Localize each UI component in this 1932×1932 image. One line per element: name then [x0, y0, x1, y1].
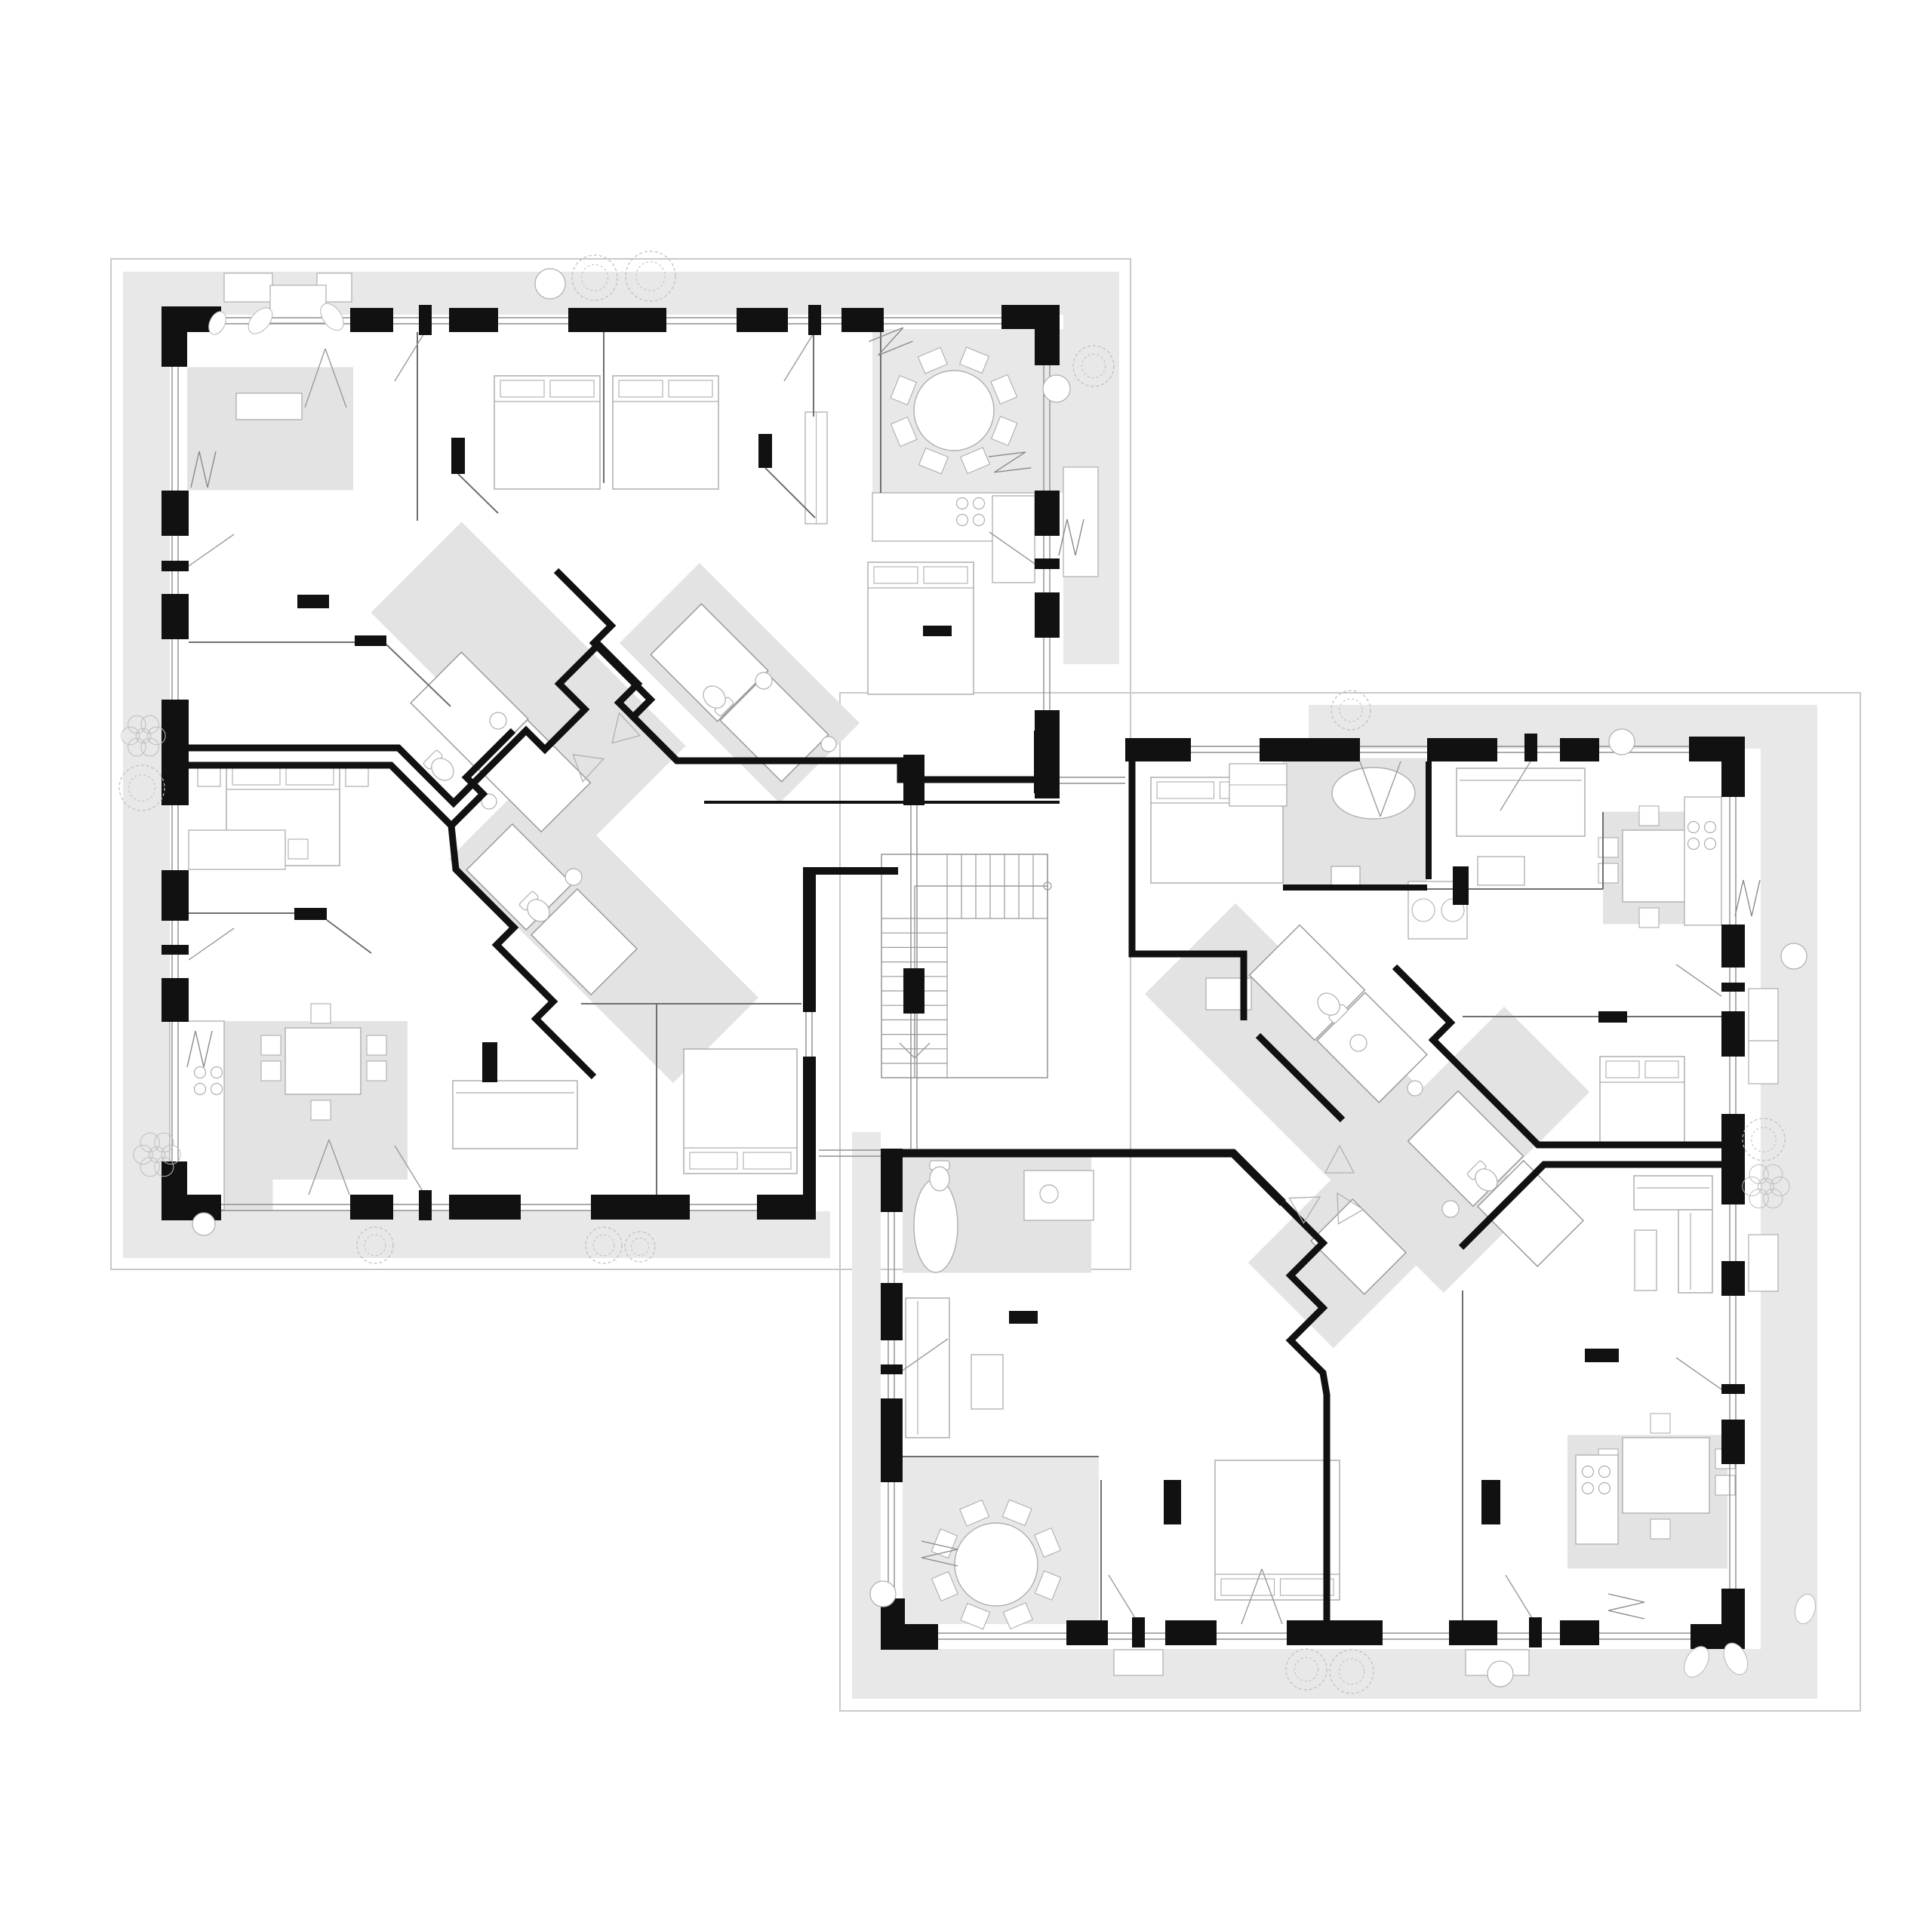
wall-pier [449, 308, 498, 332]
wall-pier [881, 1283, 903, 1340]
chair [1639, 806, 1659, 826]
table [1478, 857, 1524, 885]
wall-pier [1721, 1114, 1745, 1204]
table [236, 393, 302, 420]
bed [613, 376, 718, 489]
planter [1043, 375, 1070, 402]
desk [189, 830, 285, 869]
wall-pier [881, 1398, 903, 1482]
sink [1040, 1185, 1058, 1203]
wall-pier [808, 305, 821, 335]
planter [535, 269, 565, 299]
wall-pier [162, 700, 189, 805]
sofa [1634, 1176, 1712, 1210]
wall-jamb [294, 908, 327, 920]
wall-jamb [355, 635, 386, 646]
wall-jamb [1598, 1011, 1627, 1023]
wall-jamb [1585, 1349, 1619, 1362]
bed [494, 376, 600, 489]
sink [1442, 1201, 1459, 1217]
sink [1350, 1035, 1367, 1051]
wall-jamb [297, 595, 329, 608]
wardrobe [1229, 764, 1287, 806]
bed-pillow [1606, 1061, 1639, 1078]
sofa-body [1634, 1176, 1712, 1210]
chair [1715, 1475, 1735, 1495]
wall-pier [419, 305, 432, 335]
wall-pier [841, 308, 884, 332]
kitchen-counter [1024, 1171, 1094, 1220]
sink [821, 737, 836, 752]
terrace-band [1761, 705, 1817, 1699]
terrace-furniture [224, 273, 272, 302]
chair [1651, 1519, 1670, 1539]
bed-pillow [500, 380, 544, 397]
bed [684, 1049, 797, 1174]
partition-wall [458, 474, 498, 513]
chair [261, 1061, 281, 1081]
chair [311, 1100, 331, 1120]
wall-pier [1721, 1261, 1745, 1296]
round-table [914, 371, 994, 451]
wall-pier [1427, 738, 1497, 761]
wall-pier [1035, 491, 1060, 536]
planter [1609, 729, 1635, 755]
wall-pier [903, 968, 924, 1014]
wall-pier [162, 978, 189, 1022]
wall-pier [881, 1364, 903, 1374]
sofa [1678, 1210, 1712, 1293]
bed-pillow [550, 380, 594, 397]
bed-pillow [1645, 1061, 1678, 1078]
wall-pier [1524, 734, 1537, 761]
planter [870, 1581, 896, 1607]
chair [311, 1004, 331, 1023]
sofa-body [453, 1081, 577, 1149]
wall-jamb [758, 434, 772, 468]
wall-pier [162, 870, 189, 921]
kitchen-counter [1684, 797, 1721, 925]
sofa [453, 1081, 577, 1149]
chair [288, 839, 308, 859]
planter [192, 1213, 215, 1235]
wall-jamb [1481, 1480, 1500, 1524]
door-leaf [1109, 1575, 1139, 1624]
terrace-furniture [1749, 1235, 1778, 1291]
sink [490, 712, 506, 729]
door-leaf [1676, 1358, 1721, 1389]
wall-jamb [482, 1042, 497, 1082]
partition-wall [327, 920, 371, 953]
toilet-bowl [930, 1167, 949, 1191]
wall-pier [1260, 738, 1360, 761]
wall-pier [1721, 1011, 1745, 1057]
wall-pier [803, 1057, 816, 1220]
wall-pier [1035, 592, 1060, 638]
wall-pier [1035, 558, 1060, 569]
wall-jamb [1453, 866, 1469, 905]
wall-pier [1560, 738, 1599, 761]
wall-pier [1066, 1620, 1108, 1645]
wall-pier [1125, 738, 1191, 761]
floor-plan-page [0, 0, 1932, 1932]
bed-pillow [286, 768, 334, 785]
wall-pier [1132, 1617, 1145, 1647]
sink [755, 672, 772, 689]
planter [1487, 1661, 1513, 1687]
bed-pillow [743, 1152, 791, 1169]
wall-pier [1449, 1620, 1497, 1645]
shrub-petal [1743, 1177, 1761, 1195]
wall-pier [162, 306, 187, 367]
table [971, 1355, 1003, 1409]
chair [1598, 838, 1618, 857]
wall-pier [419, 1190, 432, 1220]
chair [1639, 908, 1659, 928]
bed [1215, 1460, 1340, 1600]
wall-pier [1034, 731, 1055, 793]
terrace-furniture [1063, 467, 1098, 577]
chair [1598, 863, 1618, 883]
planter [1781, 943, 1807, 969]
wall-pier [350, 1195, 393, 1220]
dining-table [1623, 1438, 1709, 1513]
wall-jamb [451, 438, 465, 474]
wall-pier [1287, 1620, 1383, 1645]
stairwell [881, 854, 1051, 1078]
wall-pier [1035, 305, 1060, 365]
wall-pier [162, 594, 189, 639]
sink [1407, 1081, 1423, 1096]
closet-zigzag [1735, 880, 1760, 916]
bed [868, 562, 974, 694]
chair [367, 1061, 386, 1081]
wall-pier [162, 561, 189, 571]
bed-pillow [874, 567, 918, 583]
terrace-band [852, 1132, 881, 1699]
wall-pier [1165, 1620, 1217, 1645]
wall-jamb [1009, 1311, 1038, 1324]
sofa [1457, 768, 1585, 836]
terrace-band [852, 1649, 1817, 1699]
wall-pier [568, 308, 666, 332]
wall-pier [1721, 983, 1745, 992]
chair [367, 1035, 386, 1055]
bed [1600, 1057, 1684, 1147]
wall-pier [881, 1149, 903, 1212]
stair-outline [881, 854, 1048, 1078]
round-table [955, 1523, 1038, 1606]
dining-table [285, 1028, 361, 1094]
table [1635, 1230, 1657, 1291]
wall-jamb [1164, 1480, 1181, 1524]
door-leaf [1676, 964, 1721, 996]
bathtub [914, 1179, 958, 1272]
wall-pier [162, 491, 189, 536]
bed-pillow [669, 380, 712, 397]
door-leaf [189, 534, 234, 566]
kitchen-counter [1576, 1455, 1618, 1544]
bed-pillow [690, 1152, 737, 1169]
wall-pier [1721, 924, 1745, 968]
wall-pier [1560, 1620, 1599, 1645]
sofa [906, 1298, 949, 1438]
sofa-body [906, 1298, 949, 1438]
chair [261, 1035, 281, 1055]
sofa-body [1457, 768, 1585, 836]
wall-pier [1529, 1617, 1542, 1647]
bed-pillow [232, 768, 280, 785]
circulation-zone [187, 368, 353, 491]
wall-pier [803, 867, 816, 1012]
door-leaf [1506, 1575, 1536, 1624]
wall-pier [1721, 737, 1745, 797]
wardrobe [805, 412, 827, 524]
wall-pier [737, 308, 788, 332]
sofa-body [1678, 1210, 1712, 1293]
toilet [930, 1161, 949, 1191]
dining-table [1623, 830, 1694, 902]
bed-pillow [619, 380, 663, 397]
wall-pier [449, 1195, 521, 1220]
bathtub [1332, 768, 1415, 819]
wall-pier [881, 1624, 938, 1650]
chair [1651, 1414, 1670, 1433]
bed-pillow [924, 567, 968, 583]
terrace-furniture [1114, 1650, 1163, 1675]
wall-pier [1721, 1420, 1745, 1464]
wall-jamb [923, 626, 952, 636]
wall-pier [350, 308, 393, 332]
wall-pier [591, 1195, 690, 1220]
bed-pillow [1157, 782, 1214, 798]
sink [565, 869, 582, 885]
wall-pier [162, 945, 189, 955]
terrace-furniture [1749, 989, 1778, 1041]
door-leaf [395, 332, 425, 381]
wall-pier [1721, 1384, 1745, 1394]
closet-zigzag [1608, 1594, 1644, 1619]
door-leaf [784, 332, 814, 381]
terrace-furniture [1749, 1041, 1778, 1084]
floor-plan-canvas [0, 0, 1932, 1932]
door-leaf [189, 928, 234, 960]
